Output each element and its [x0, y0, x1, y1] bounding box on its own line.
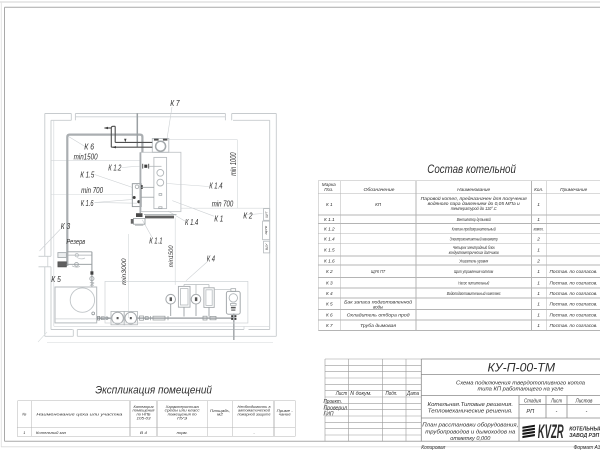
svg-text:К 1: К 1 [214, 214, 223, 224]
svg-text:min 700: min 700 [81, 185, 103, 195]
svg-text:План расстановки оборудования,: План расстановки оборудования, [422, 422, 518, 428]
svg-text:температурой до 110°.С: температурой до 110°.С [451, 205, 497, 211]
svg-text:К 1.1: К 1.1 [324, 217, 335, 222]
svg-text:К 1.5: К 1.5 [80, 169, 94, 179]
svg-text:Тепломеханические решения.: Тепломеханические решения. [428, 408, 513, 414]
svg-text:N докум.: N докум. [350, 391, 372, 397]
svg-text:К 5: К 5 [51, 274, 61, 284]
svg-text:К 3: К 3 [326, 281, 333, 286]
svg-text:1: 1 [537, 313, 540, 318]
svg-text:Постав. по согласов.: Постав. по согласов. [550, 269, 598, 274]
svg-text:К 4: К 4 [207, 254, 215, 264]
svg-text:К 1.4: К 1.4 [185, 217, 198, 227]
svg-text:2: 2 [536, 258, 540, 263]
svg-text:К 3: К 3 [61, 221, 71, 231]
svg-text:Стадия: Стадия [524, 399, 541, 405]
svg-text:Вентилятор дутьевой: Вентилятор дутьевой [457, 216, 491, 222]
svg-text:Примечание: Примечание [560, 187, 588, 192]
svg-text:min 1000: min 1000 [228, 152, 238, 175]
svg-text:Поз.: Поз. [324, 187, 333, 192]
svg-text:2: 2 [536, 237, 540, 242]
svg-text:Труба дымовая: Труба дымовая [360, 323, 397, 328]
svg-text:Листов: Листов [575, 399, 593, 405]
svg-text:ЩУК: ЩУК [264, 225, 268, 234]
svg-text:К 1.1: К 1.1 [149, 235, 162, 245]
svg-text:1: 1 [537, 217, 540, 222]
svg-text:1: 1 [537, 291, 540, 296]
svg-text:Дата: Дата [406, 391, 419, 397]
svg-text:чание: чание [279, 413, 291, 417]
svg-text:1: 1 [23, 431, 25, 435]
svg-text:min1500: min1500 [74, 151, 98, 161]
svg-text:К 1.6: К 1.6 [81, 198, 94, 208]
svg-text:ПУЭ: ПУЭ [177, 417, 187, 421]
svg-text:Наименование: Наименование [457, 187, 491, 192]
svg-text:Водоподготовительный комплекс: Водоподготовительный комплекс [447, 290, 501, 296]
svg-text:Котельная.Типовые решения.: Котельная.Типовые решения. [428, 402, 514, 408]
svg-text:К 2: К 2 [243, 211, 253, 221]
svg-text:Постав. по согласов.: Постав. по согласов. [550, 313, 598, 318]
svg-text:1: 1 [537, 269, 540, 274]
svg-text:Щит управления котлом: Щит управления котлом [454, 269, 494, 274]
svg-text:Наименование цеха или участка: Наименование цеха или участка [36, 413, 122, 417]
svg-text:KVZR: KVZR [538, 422, 564, 443]
svg-text:1: 1 [537, 301, 540, 306]
svg-text:№: № [22, 413, 26, 417]
svg-text:отметку 0,000: отметку 0,000 [450, 436, 490, 442]
svg-text:Постав. по согласов.: Постав. по согласов. [550, 291, 598, 296]
svg-text:В 4: В 4 [140, 431, 147, 435]
svg-text:min 700: min 700 [212, 198, 234, 208]
svg-text:К 7: К 7 [326, 323, 333, 328]
svg-text:Состав котельной: Состав котельной [427, 164, 516, 176]
svg-text:К 1.4: К 1.4 [209, 180, 222, 190]
svg-text:К 1.2: К 1.2 [324, 227, 335, 232]
svg-text:Постав. по согласов.: Постав. по согласов. [550, 301, 598, 306]
svg-text:105-03: 105-03 [137, 417, 152, 421]
svg-text:типа КП работающего на угле: типа КП работающего на угле [478, 387, 564, 393]
svg-text:КП: КП [375, 202, 382, 207]
svg-text:1: 1 [537, 248, 540, 253]
svg-text:ЗАВОД РЭП: ЗАВОД РЭП [569, 433, 599, 439]
svg-text:Лист: Лист [335, 391, 348, 397]
svg-text:К 5: К 5 [326, 301, 333, 306]
svg-text:К 6: К 6 [326, 313, 333, 318]
svg-text:Проект.: Проект. [324, 399, 343, 405]
svg-text:Указатель уровня: Указатель уровня [459, 258, 488, 263]
svg-text:норм.: норм. [177, 431, 188, 435]
svg-text:К 7: К 7 [170, 98, 180, 108]
svg-text:К 1.5: К 1.5 [324, 248, 335, 253]
svg-text:Охладитель отбора прод: Охладитель отбора прод [347, 313, 410, 318]
svg-text:Проверил: Проверил [324, 405, 348, 411]
svg-text:1: 1 [537, 202, 540, 207]
svg-text:КУ-П-00-ТМ: КУ-П-00-ТМ [488, 360, 556, 374]
svg-text:воды: воды [373, 304, 383, 309]
svg-text:К 4: К 4 [326, 291, 333, 296]
svg-text:Клапан предохранительный: Клапан предохранительный [452, 226, 496, 232]
svg-text:К 2: К 2 [326, 269, 333, 274]
svg-text:РП: РП [526, 409, 535, 415]
svg-text:Постав. по согласов.: Постав. по согласов. [550, 281, 598, 286]
svg-text:1: 1 [537, 281, 540, 286]
svg-text:компл.: компл. [534, 227, 544, 232]
svg-text:К 1.4: К 1.4 [324, 237, 335, 242]
svg-text:Электроконтактный манометр: Электроконтактный манометр [450, 236, 498, 242]
svg-text:Лист: Лист [550, 399, 562, 405]
svg-text:КОТЕЛЬНЫЙ: КОТЕЛЬНЫЙ [569, 425, 600, 433]
svg-text:Обозначение: Обозначение [364, 187, 396, 192]
svg-text:ЩУТ: ЩУТ [265, 211, 269, 218]
svg-text:Экспликация помещений: Экспликация помещений [95, 385, 212, 397]
svg-text:min3000: min3000 [121, 258, 128, 285]
svg-text:ГИП: ГИП [324, 412, 334, 418]
svg-text:Насос питательный: Насос питательный [458, 280, 489, 286]
svg-text:К 6: К 6 [84, 142, 94, 152]
svg-text:Резерв: Резерв [66, 239, 85, 246]
svg-text:трубопроводов и дымоходов на: трубопроводов и дымоходов на [425, 429, 515, 435]
svg-text:К 1.6: К 1.6 [324, 258, 335, 263]
svg-text:К 1: К 1 [326, 202, 333, 207]
svg-text:Постав. по согласов.: Постав. по согласов. [550, 323, 598, 328]
svg-text:Кол.: Кол. [534, 187, 543, 192]
svg-text:ЩУК ПТ: ЩУК ПТ [371, 269, 386, 274]
svg-text:Формат А3: Формат А3 [574, 445, 600, 450]
svg-text:Котельный зал: Котельный зал [36, 431, 67, 435]
svg-text:1: 1 [537, 323, 540, 328]
svg-text:min1500: min1500 [168, 245, 175, 267]
svg-text:К 1.2: К 1.2 [108, 162, 121, 172]
svg-text:Копировал: Копировал [421, 445, 445, 450]
svg-text:пожарной защите: пожарной защите [238, 413, 271, 417]
svg-text:кондуктометрических датчиков: кондуктометрических датчиков [449, 250, 499, 255]
svg-text:Подп.: Подп. [386, 391, 398, 397]
